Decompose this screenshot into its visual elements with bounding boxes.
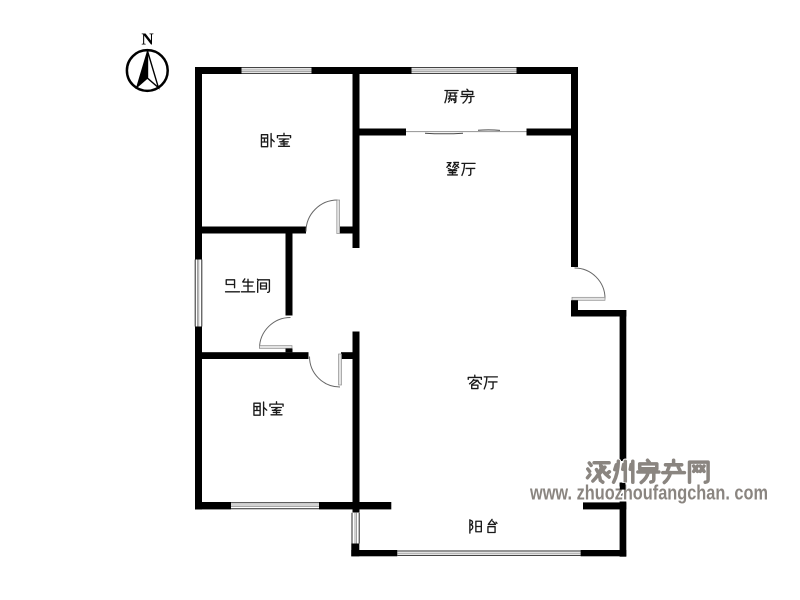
svg-text:www. zhuozhoufangchan. com: www. zhuozhoufangchan. com [529,482,768,505]
svg-text:N: N [141,30,154,49]
